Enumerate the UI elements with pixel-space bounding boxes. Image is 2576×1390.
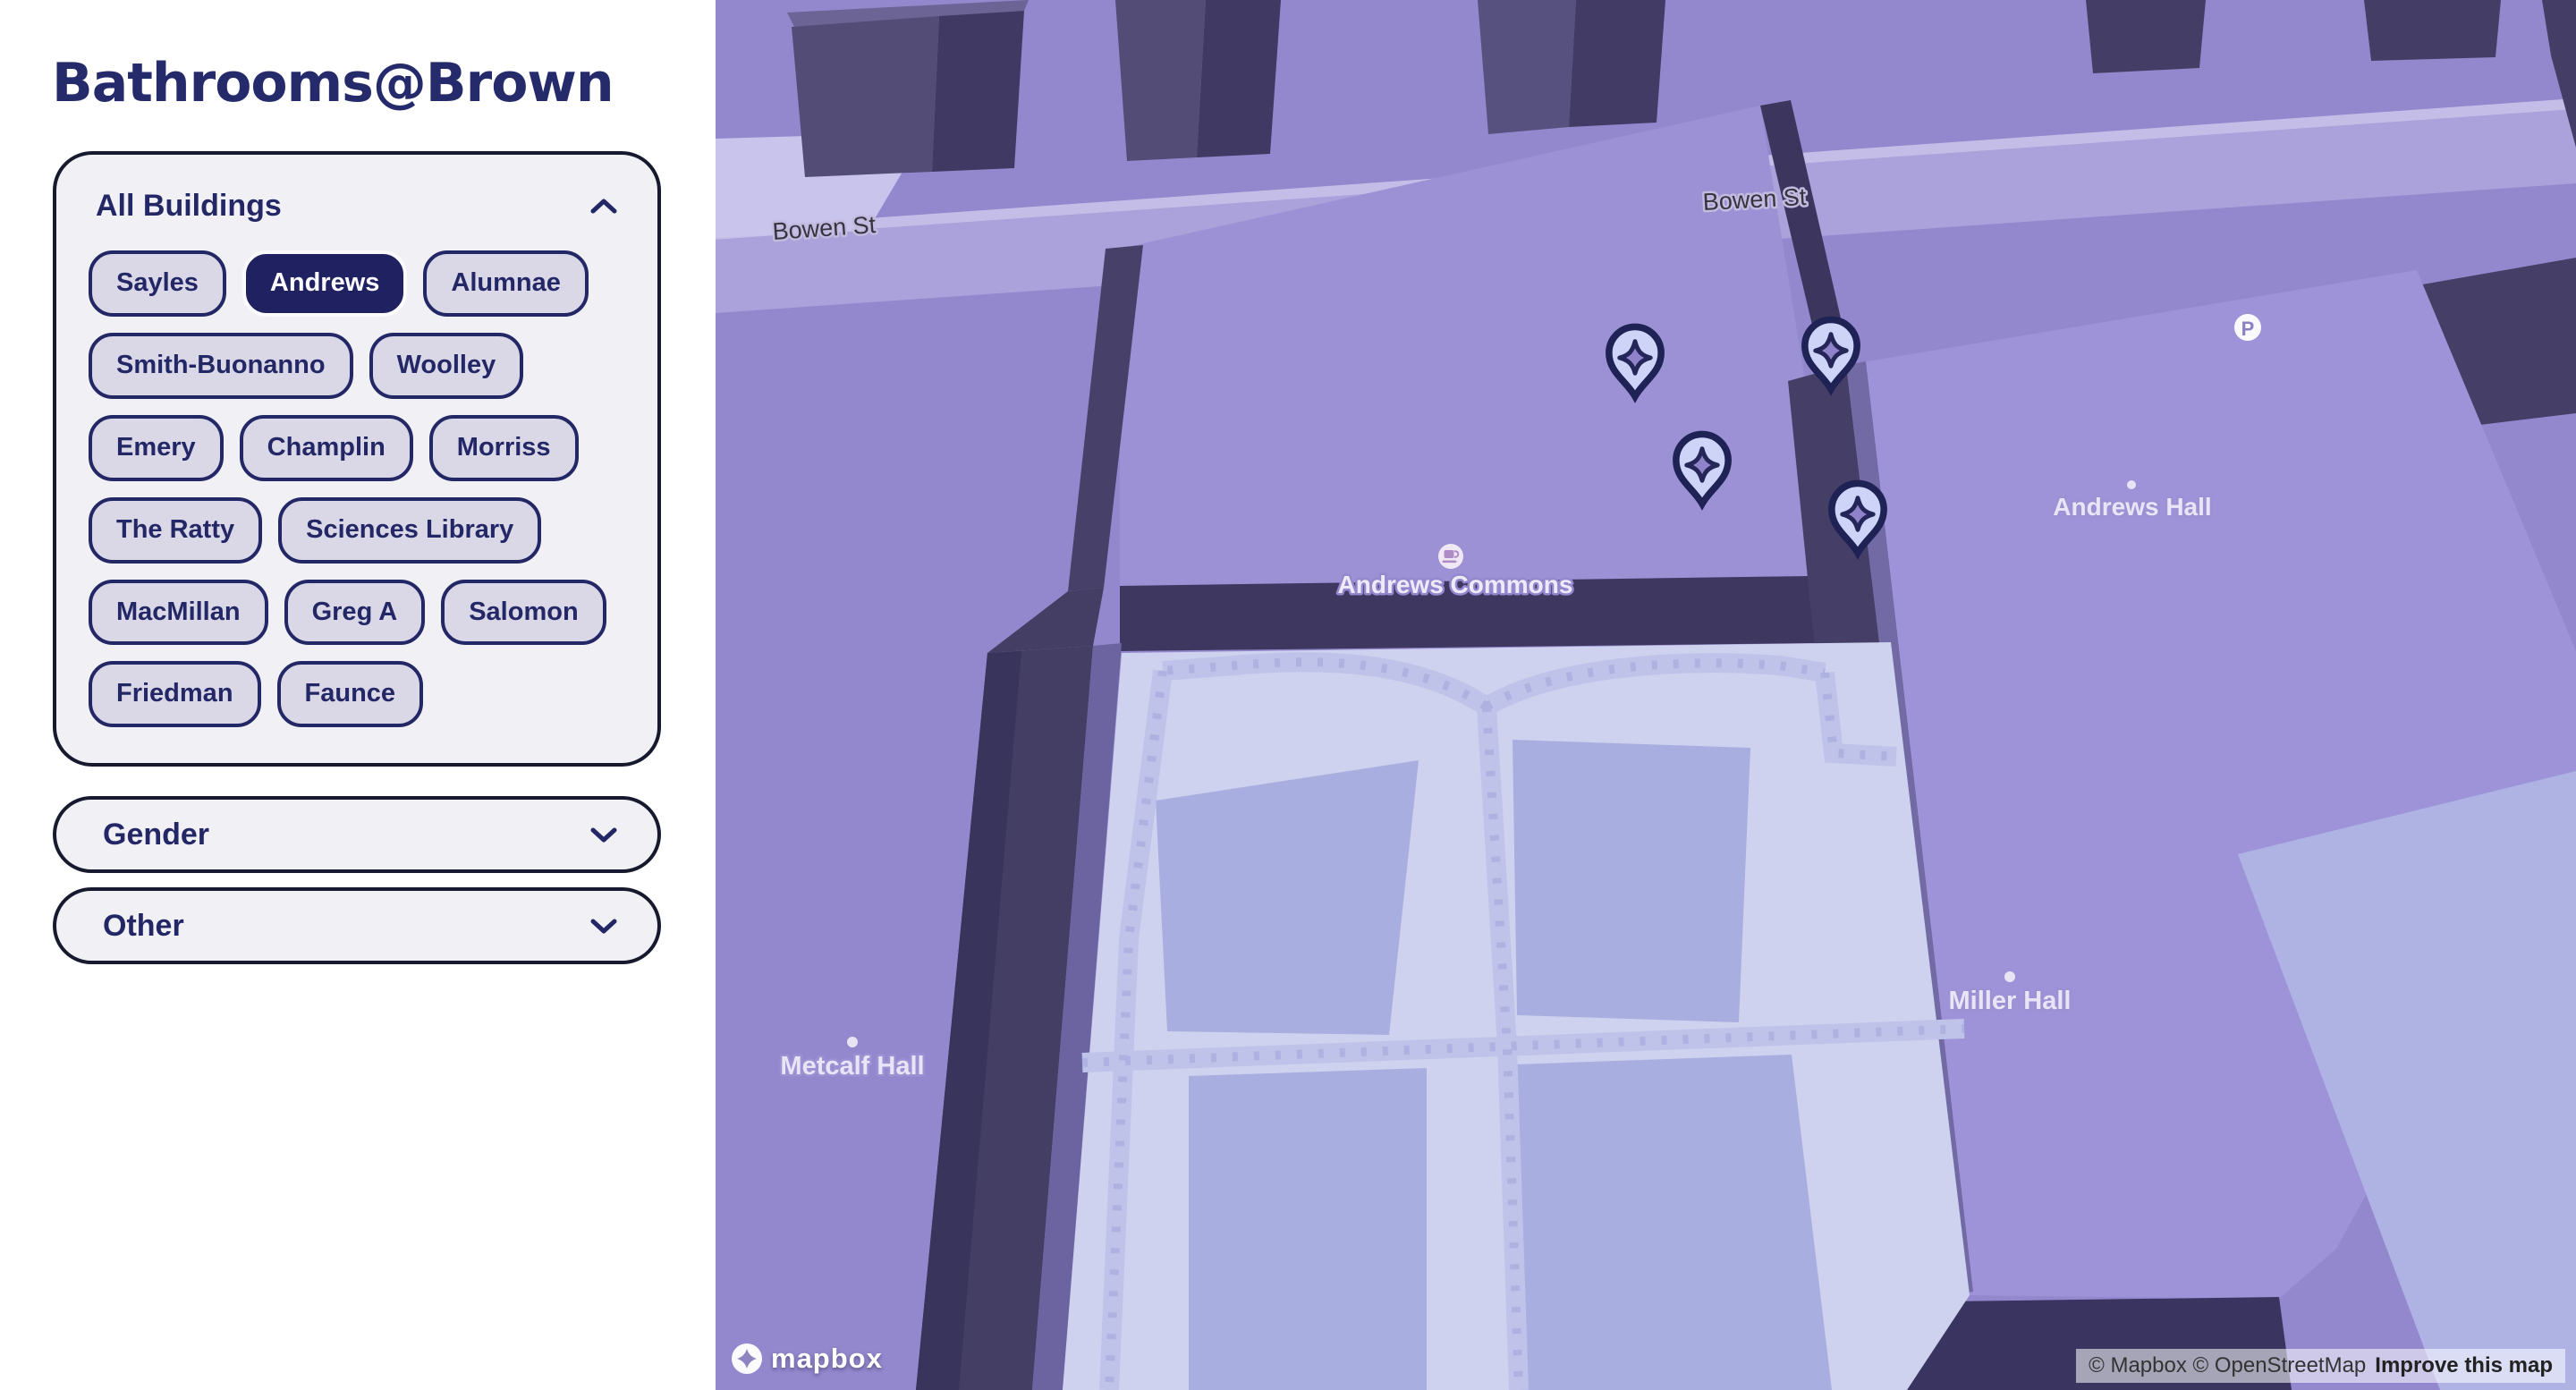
coffee-cup-icon bbox=[1445, 550, 1454, 558]
building-button-the-ratty[interactable]: The Ratty bbox=[89, 497, 262, 564]
chevron-down-icon bbox=[588, 824, 620, 845]
buildings-panel-header[interactable]: All Buildings bbox=[89, 182, 625, 224]
building-button-faunce[interactable]: Faunce bbox=[277, 661, 424, 727]
building-button-sciences-library[interactable]: Sciences Library bbox=[278, 497, 541, 564]
metcalf-hall-dot bbox=[847, 1037, 858, 1047]
building-button-champlin[interactable]: Champlin bbox=[240, 415, 413, 481]
label-metcalf-hall: Metcalf Hall bbox=[780, 1052, 924, 1081]
building-button-morriss[interactable]: Morriss bbox=[429, 415, 579, 481]
cafe-poi[interactable] bbox=[1438, 544, 1463, 569]
building-button-alumnae[interactable]: Alumnae bbox=[423, 250, 588, 317]
other-accordion-label: Other bbox=[103, 909, 184, 944]
buildings-panel-title: All Buildings bbox=[96, 189, 282, 224]
parking-poi[interactable]: P bbox=[2234, 314, 2261, 341]
building-button-friedman[interactable]: Friedman bbox=[89, 661, 261, 727]
chevron-up-icon[interactable] bbox=[588, 196, 620, 217]
parking-label: P bbox=[2241, 318, 2255, 340]
map-canvas[interactable]: Bowen St Bowen St Andrews Commons Andrew… bbox=[716, 0, 2576, 1390]
building-button-emery[interactable]: Emery bbox=[89, 415, 224, 481]
building-button-greg-a[interactable]: Greg A bbox=[284, 580, 426, 646]
buildings-filter-panel: All Buildings SaylesAndrewsAlumnaeSmith-… bbox=[53, 151, 661, 767]
map-container[interactable]: Bowen St Bowen St Andrews Commons Andrew… bbox=[716, 0, 2576, 1390]
mapbox-logo-text: mapbox bbox=[771, 1343, 883, 1375]
building-button-smith-buonanno[interactable]: Smith-Buonanno bbox=[89, 333, 353, 399]
map-attribution: © Mapbox © OpenStreetMap Improve this ma… bbox=[2076, 1349, 2565, 1383]
bathrooms-at-brown-app: Bathrooms@Brown All Buildings SaylesAndr… bbox=[0, 0, 2576, 1390]
gender-accordion-label: Gender bbox=[103, 818, 209, 852]
label-andrews-hall: Andrews Hall bbox=[2053, 493, 2211, 521]
attribution-copyright[interactable]: © Mapbox © OpenStreetMap bbox=[2089, 1353, 2366, 1378]
building-button-woolley[interactable]: Woolley bbox=[369, 333, 524, 399]
label-miller-hall: Miller Hall bbox=[1949, 987, 2072, 1015]
building-button-macmillan[interactable]: MacMillan bbox=[89, 580, 268, 646]
improve-map-link[interactable]: Improve this map bbox=[2375, 1353, 2553, 1378]
building-button-sayles[interactable]: Sayles bbox=[89, 250, 226, 317]
label-andrews-commons: Andrews Commons bbox=[1338, 571, 1573, 598]
building-button-salomon[interactable]: Salomon bbox=[441, 580, 606, 646]
miller-hall-dot bbox=[2004, 971, 2015, 982]
page-title: Bathrooms@Brown bbox=[52, 52, 614, 114]
mapbox-logo-icon bbox=[730, 1342, 764, 1376]
building-button-andrews[interactable]: Andrews bbox=[242, 250, 407, 317]
building-button-list: SaylesAndrewsAlumnaeSmith-BuonannoWoolle… bbox=[89, 250, 625, 727]
andrews-hall-dot bbox=[2127, 480, 2136, 489]
sidebar: Bathrooms@Brown All Buildings SaylesAndr… bbox=[0, 0, 716, 1390]
map-terrain bbox=[716, 0, 2576, 1390]
chevron-down-icon bbox=[588, 915, 620, 937]
gender-accordion[interactable]: Gender bbox=[53, 796, 661, 873]
other-accordion[interactable]: Other bbox=[53, 887, 661, 964]
street-label-bowen-east: Bowen St bbox=[1702, 183, 1807, 216]
mapbox-logo[interactable]: mapbox bbox=[730, 1342, 883, 1376]
